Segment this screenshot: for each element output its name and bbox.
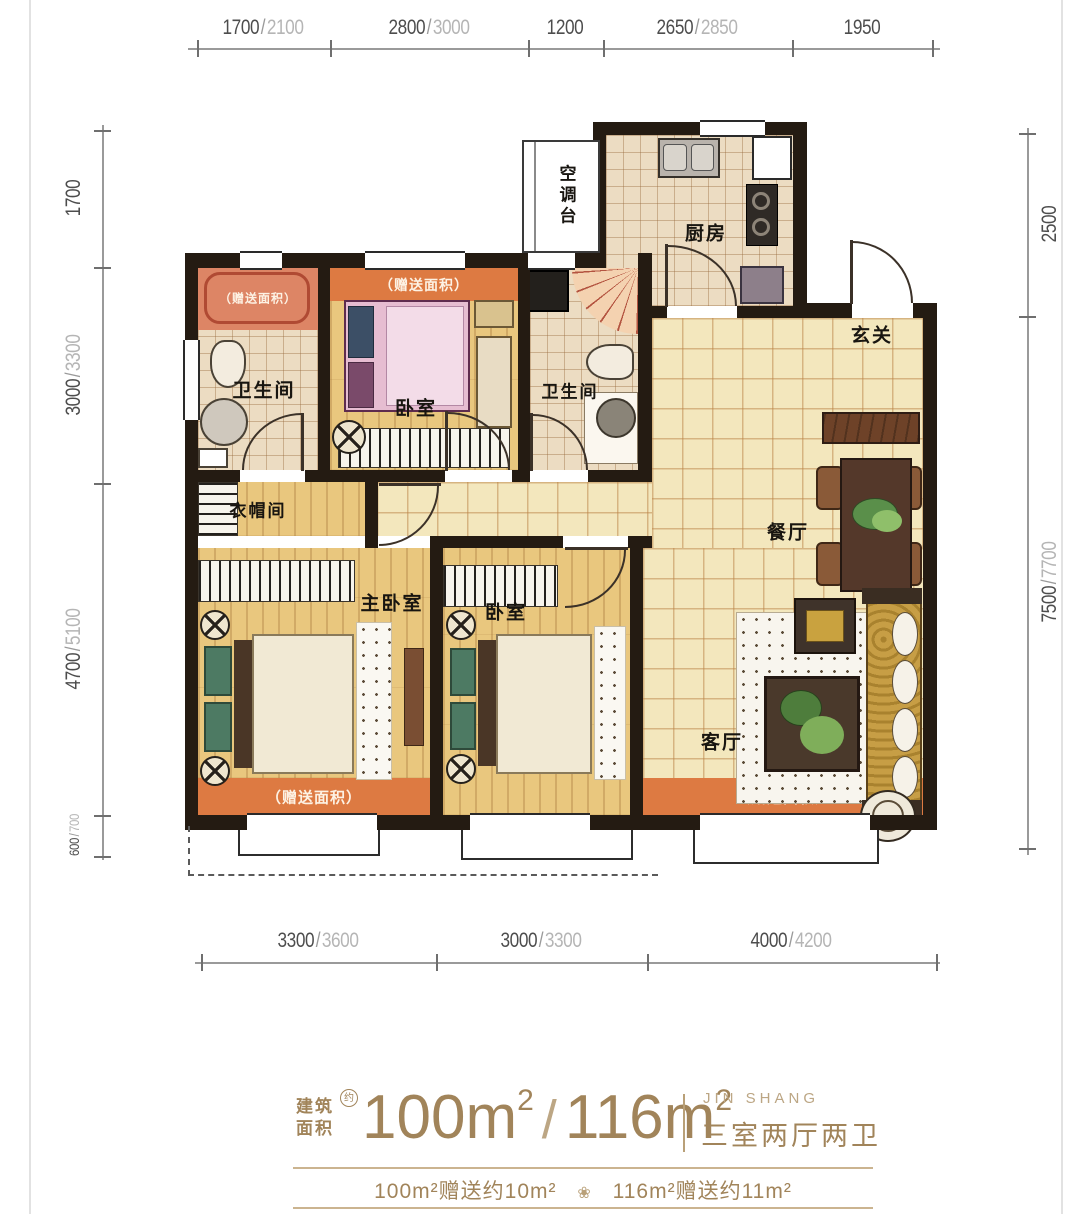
gift-area-label: （赠送面积）	[379, 275, 469, 295]
wall	[305, 470, 445, 482]
frame-line-left	[29, 0, 31, 1214]
bed-pillow	[204, 646, 232, 696]
wall	[518, 253, 530, 482]
room-label-master: 主卧室	[360, 589, 423, 616]
bed-pillow	[348, 306, 374, 358]
dim-top-4: 2650/2850	[656, 16, 737, 40]
side-table	[332, 420, 366, 454]
dimension-tick	[936, 954, 938, 971]
dim-line-left	[102, 125, 104, 860]
dim-top-2: 2800/3000	[388, 16, 469, 40]
door-arc	[852, 241, 913, 303]
room-label-kitchen: 厨房	[685, 219, 727, 246]
sideboard	[822, 412, 920, 444]
dim-left-2: 3000/3300	[62, 334, 86, 415]
wall	[512, 470, 530, 482]
room-label-bath1: 卫生间	[232, 376, 295, 403]
dimension-tick	[197, 40, 199, 57]
gift-area-label: （赠送面积）	[266, 787, 362, 808]
nightstand	[200, 756, 230, 786]
room-label-living: 客厅	[701, 728, 743, 755]
wall	[923, 303, 937, 830]
nightstand	[446, 754, 476, 784]
wall	[630, 536, 643, 815]
dimension-tick	[94, 483, 111, 485]
gift-area-label: （赠送面积）	[219, 290, 297, 307]
dimension-tick	[1019, 133, 1036, 135]
dresser	[476, 336, 512, 428]
bed	[252, 634, 354, 774]
table-plant	[872, 510, 902, 532]
bed-pillow	[450, 702, 476, 750]
footer-area-prefix-line2: 面积	[296, 1118, 334, 1140]
sink-basin	[691, 144, 714, 171]
washbasin	[596, 398, 636, 438]
dim-top-3: 1200	[547, 16, 584, 40]
bay-window	[238, 830, 380, 856]
side-table-top	[806, 610, 844, 642]
room-label-entry: 玄关	[851, 321, 893, 348]
burner	[752, 218, 770, 236]
brand-en: JIN SHANG	[703, 1090, 819, 1107]
dimension-tick	[94, 856, 111, 858]
sofa-cushion	[892, 708, 918, 752]
nightstand	[446, 610, 476, 640]
dim-left-4: 600/700	[66, 814, 82, 856]
dim-line-bottom	[195, 962, 940, 964]
area-slash: /	[534, 1090, 565, 1150]
wall	[793, 122, 807, 318]
nightstand	[474, 300, 514, 328]
room-label-bedroom2: 卧室	[485, 598, 527, 625]
rug	[594, 626, 626, 780]
toilet	[586, 344, 634, 380]
dimension-tick	[1019, 316, 1036, 318]
dim-right-2: 7500/7700	[1038, 541, 1062, 622]
washbasin	[200, 398, 248, 446]
dimension-tick	[201, 954, 203, 971]
bed-pillow	[450, 648, 476, 696]
wall	[652, 306, 667, 318]
kitchen-corner-window	[752, 136, 792, 180]
gift-note: 100m²赠送约10m² ❀ 116m²赠送约11m²	[374, 1175, 792, 1205]
area-sup: 2	[517, 1084, 534, 1117]
dimension-tick	[647, 954, 649, 971]
wall	[318, 253, 330, 482]
bed-pillow	[204, 702, 232, 752]
dim-line-top	[188, 48, 940, 50]
dim-top-5: 1950	[844, 16, 881, 40]
room-label-bath2: 卫生间	[542, 378, 599, 403]
area-value-2: 116	[565, 1083, 664, 1152]
bench	[404, 648, 424, 746]
dimension-tick	[94, 815, 111, 817]
room-label-ac-platform: 空调台	[554, 165, 579, 228]
approx-badge: 约	[340, 1089, 358, 1107]
footer-rule-bottom	[293, 1207, 873, 1209]
wall	[638, 253, 652, 482]
dim-right-1: 2500	[1038, 206, 1062, 243]
footer-area-prefix: 建筑 面积	[296, 1096, 334, 1140]
bay-window	[461, 830, 633, 860]
dimension-tick	[94, 267, 111, 269]
footer-rule-top	[293, 1167, 873, 1169]
window	[183, 340, 200, 420]
washer	[198, 448, 228, 468]
dimension-tick	[436, 954, 438, 971]
gift-note-1: 100m²赠送约10m²	[374, 1180, 556, 1203]
bed-blanket	[348, 362, 374, 408]
wall	[793, 303, 852, 318]
wardrobe-rack	[198, 560, 355, 602]
bed-headboard	[478, 640, 496, 766]
dim-left-3: 4700/5100	[62, 608, 86, 689]
room-label-dining: 餐厅	[767, 518, 809, 545]
wall	[185, 470, 240, 482]
footer-divider	[683, 1094, 685, 1152]
dim-left-1: 1700	[62, 180, 86, 217]
footer-area-prefix-line1: 建筑	[296, 1096, 334, 1118]
gift-note-2: 116m²赠送约11m²	[613, 1180, 792, 1203]
room-label-bedroom-top: 卧室	[395, 394, 437, 421]
flower-icon: ❀	[563, 1185, 605, 1202]
plant	[800, 716, 844, 754]
area-title: 100m2/116m2	[362, 1086, 732, 1149]
layout-type: 三室两厅两卫	[701, 1114, 881, 1153]
dimension-tick	[603, 40, 605, 57]
bed	[496, 634, 592, 774]
window	[240, 251, 282, 270]
dim-bottom-1: 3300/3600	[277, 929, 358, 953]
dimension-tick	[932, 40, 934, 57]
bed-headboard	[234, 640, 252, 768]
window	[700, 120, 765, 137]
window	[528, 251, 575, 270]
fridge	[740, 266, 784, 304]
dimension-tick	[792, 40, 794, 57]
sofa-cushion	[892, 612, 918, 656]
dim-line-right	[1027, 128, 1029, 855]
dimension-tick	[94, 130, 111, 132]
wall	[588, 470, 652, 482]
dimension-tick	[330, 40, 332, 57]
bay-window	[693, 830, 879, 864]
dim-top-1: 1700/2100	[222, 16, 303, 40]
rug	[356, 622, 392, 780]
area-unit: m	[465, 1083, 517, 1152]
dim-bottom-3: 4000/4200	[750, 929, 831, 953]
area-value-1: 100	[362, 1083, 465, 1152]
wall	[433, 536, 563, 548]
sofa-cushion	[892, 660, 918, 704]
nightstand	[200, 610, 230, 640]
wall	[365, 482, 378, 548]
dimension-tick	[1019, 848, 1036, 850]
window	[365, 251, 465, 270]
room-label-cloakroom: 衣帽间	[230, 497, 287, 522]
bed-sheet	[386, 306, 464, 406]
wall	[430, 536, 443, 815]
dim-bottom-2: 3000/3300	[500, 929, 581, 953]
dimension-tick	[528, 40, 530, 57]
sink-basin	[663, 144, 687, 171]
ac-platform-inner-line	[534, 142, 536, 251]
burner	[752, 192, 770, 210]
sofa-armrest	[862, 588, 922, 604]
floor-plan-canvas: 1700/2100 2800/3000 1200 2650/2850 1950 …	[0, 0, 1080, 1214]
